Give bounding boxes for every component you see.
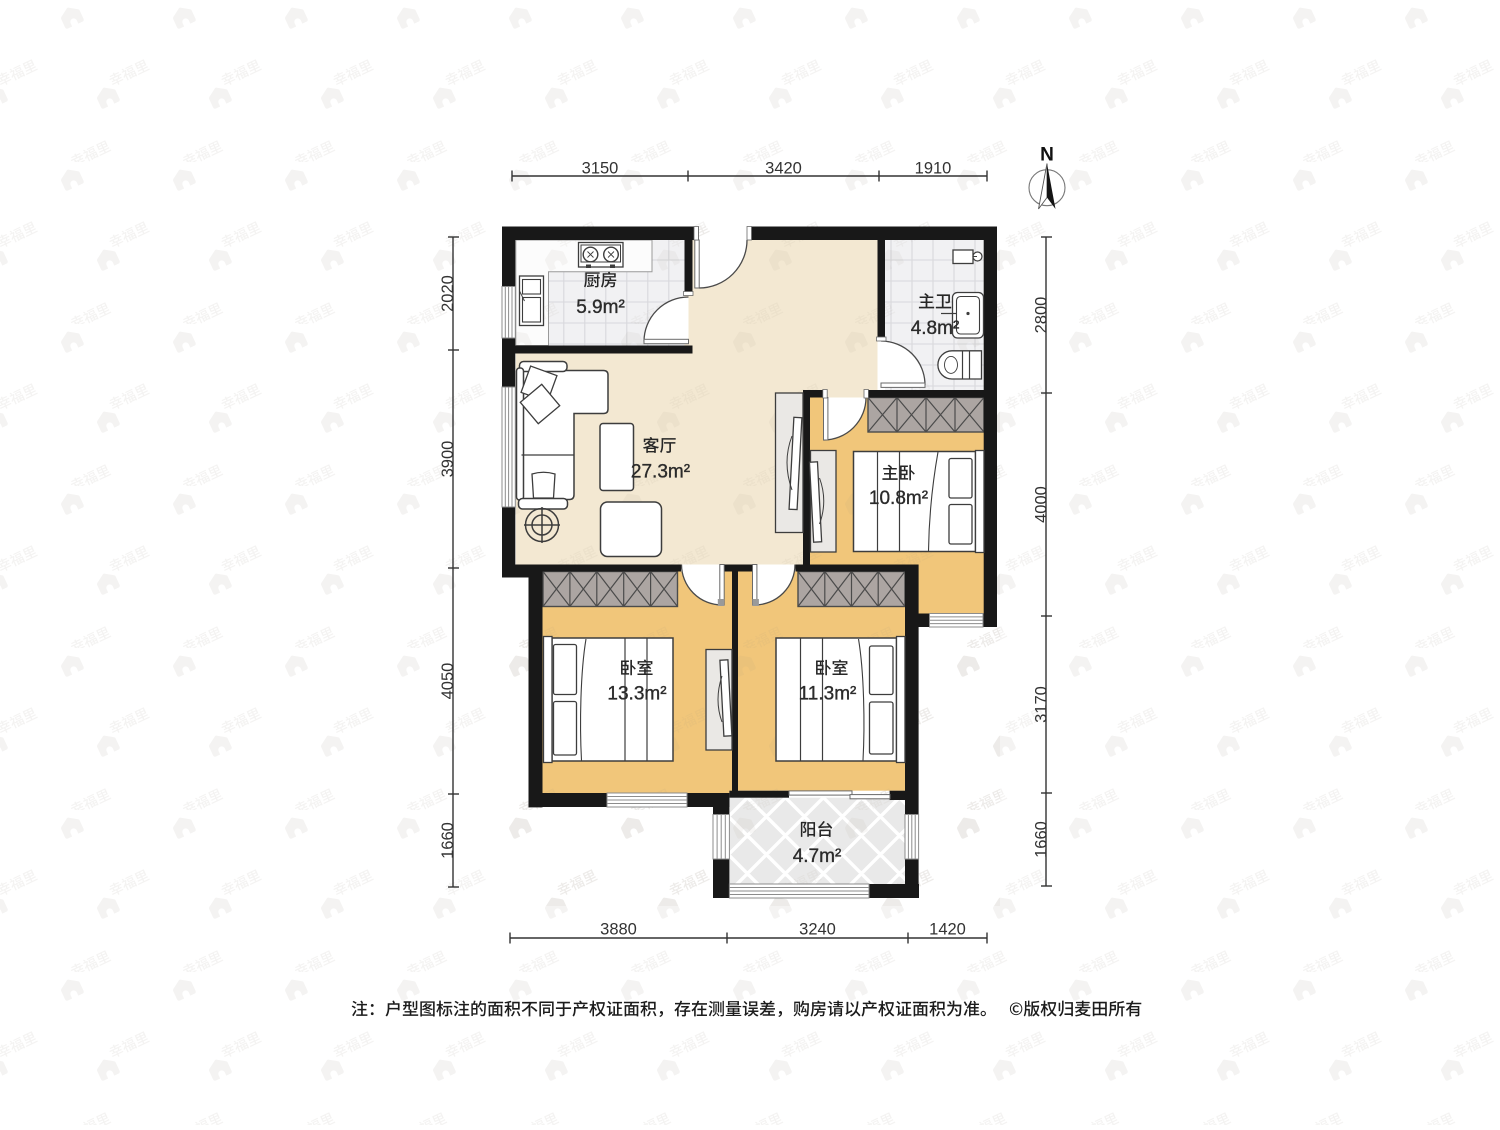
svg-text:2020: 2020	[439, 275, 457, 312]
svg-text:4.7m²: 4.7m²	[793, 846, 842, 867]
svg-text:11.3m²: 11.3m²	[799, 684, 857, 705]
svg-text:1910: 1910	[915, 160, 952, 178]
svg-text:13.3m²: 13.3m²	[607, 684, 666, 705]
svg-text:4000: 4000	[1033, 486, 1051, 523]
svg-text:4050: 4050	[439, 663, 457, 700]
svg-text:1660: 1660	[439, 822, 457, 859]
svg-text:N: N	[1040, 145, 1054, 166]
svg-text:3150: 3150	[582, 160, 619, 178]
svg-text:1420: 1420	[929, 921, 966, 939]
svg-text:4.8m²: 4.8m²	[911, 318, 960, 339]
svg-text:3240: 3240	[799, 921, 836, 939]
svg-text:3170: 3170	[1033, 686, 1051, 723]
svg-text:27.3m²: 27.3m²	[631, 462, 690, 483]
svg-text:2800: 2800	[1033, 297, 1051, 334]
svg-text:1660: 1660	[1033, 821, 1051, 858]
svg-text:3880: 3880	[600, 921, 637, 939]
svg-text:10.8m²: 10.8m²	[869, 488, 928, 509]
svg-text:3900: 3900	[439, 441, 457, 478]
svg-text:5.9m²: 5.9m²	[576, 297, 625, 318]
svg-text:3420: 3420	[765, 160, 802, 178]
